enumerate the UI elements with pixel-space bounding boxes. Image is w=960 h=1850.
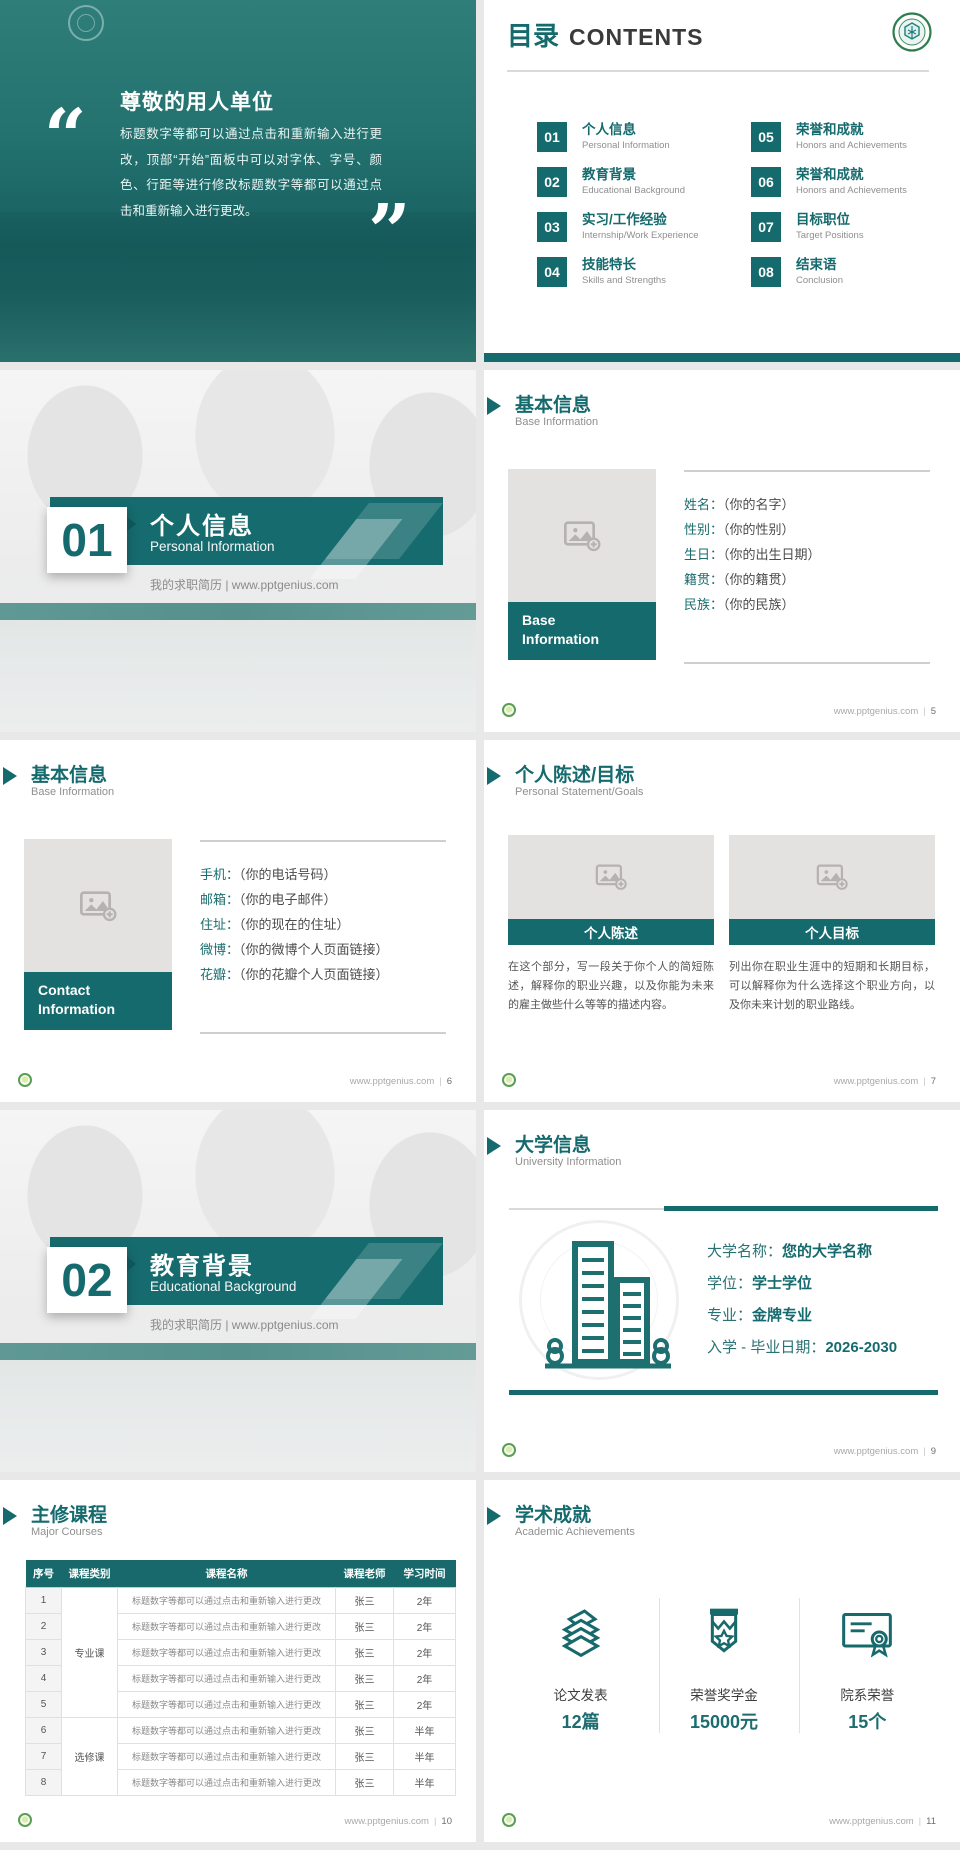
field-row: 籍贯：（你的籍贯）: [684, 567, 936, 592]
slide-title-cn: 个人陈述/目标: [515, 760, 634, 787]
medal-icon: [696, 1598, 752, 1660]
slide-base-info[interactable]: 基本信息 Base Information Base Information 姓…: [484, 370, 960, 732]
toc-title-en: CONTENTS: [569, 24, 704, 51]
cell-course-name: 标题数字等都可以通过点击和重新输入进行更改: [118, 1691, 336, 1717]
image-add-icon: [562, 516, 602, 556]
toc-item-number: 04: [537, 257, 567, 287]
title-divider: [507, 70, 929, 72]
footer-site: www.pptgenius.com: [829, 1816, 913, 1827]
field-row: 邮箱：（你的电子邮件）: [200, 887, 452, 912]
cell-duration: 半年: [394, 1717, 456, 1743]
divider: [684, 470, 930, 472]
title-pointer-icon: [487, 397, 501, 415]
detail-value: 您的大学名称: [782, 1243, 872, 1260]
photo-caption-badge: Base Information: [508, 602, 656, 660]
cell-duration: 半年: [394, 1769, 456, 1795]
field-label: 籍贯：: [684, 572, 723, 587]
toc-item-number: 03: [537, 212, 567, 242]
detail-label: 入学 - 毕业日期：: [707, 1339, 825, 1356]
cell-teacher: 张三: [336, 1639, 394, 1665]
field-value: （你的籍贯）: [723, 572, 795, 587]
image-add-icon: [594, 860, 628, 894]
page-number: 9: [931, 1446, 936, 1457]
field-value: （你的性别）: [723, 522, 795, 537]
papers-icon: [553, 1598, 609, 1660]
photo-placeholder[interactable]: [24, 839, 172, 972]
cell-duration: 2年: [394, 1613, 456, 1639]
cell-no: 7: [26, 1743, 62, 1769]
slide-toc[interactable]: 目录 CONTENTS 01 个人信息 Personal Information: [484, 0, 960, 362]
toc-item-subtitle: Target Positions: [796, 230, 864, 241]
cell-course-name: 标题数字等都可以通过点击和重新输入进行更改: [118, 1743, 336, 1769]
number-arrow-icon: [127, 517, 136, 531]
photo-lower-area: [0, 1360, 476, 1472]
pptgenius-logo: [502, 1443, 516, 1457]
toc-item-number: 06: [751, 167, 781, 197]
toc-item-05[interactable]: 05 荣誉和成就 Honors and Achievements: [751, 122, 960, 167]
slide-title-en: Personal Statement/Goals: [515, 786, 643, 798]
field-value: （你的花瓣个人页面链接）: [239, 967, 389, 982]
table-header-row: 序号 课程类别 课程名称 课程老师 学习时间: [26, 1560, 456, 1587]
toc-item-06[interactable]: 06 荣誉和成就 Honors and Achievements: [751, 167, 960, 212]
table-row: 6 选修课 标题数字等都可以通过点击和重新输入进行更改 张三 半年: [26, 1717, 456, 1743]
pptgenius-logo: [502, 703, 516, 717]
title-pointer-icon: [3, 1507, 17, 1525]
card-bottom-teal-line: [509, 1390, 938, 1395]
footer-separator: |: [919, 1816, 921, 1827]
toc-item-number: 08: [751, 257, 781, 287]
field-label: 姓名：: [684, 497, 723, 512]
toc-item-08[interactable]: 08 结束语 Conclusion: [751, 257, 960, 302]
goal-text: 列出你在职业生涯中的短期和长期目标，可以解释你为什么选择这个职业方向，以及你未来…: [729, 958, 935, 1015]
field-label: 民族：: [684, 597, 723, 612]
toc-item-subtitle: Honors and Achievements: [796, 140, 907, 151]
divider: [684, 662, 930, 664]
slide-major-courses[interactable]: 主修课程 Major Courses 序号 课程类别 课程名称 课程老师 学习时…: [0, 1480, 476, 1842]
card-top-gray-line: [509, 1208, 664, 1210]
stat-divider: [659, 1598, 660, 1733]
open-quote-icon: “: [44, 100, 87, 174]
field-label: 花瓣：: [200, 967, 239, 982]
toc-item-04[interactable]: 04 技能特长 Skills and Strengths: [537, 257, 751, 302]
field-row: 微博：（你的微博个人页面链接）: [200, 937, 452, 962]
page-number: 5: [931, 706, 936, 717]
footer-separator: |: [923, 1446, 925, 1457]
toc-title: 目录 CONTENTS: [507, 16, 704, 53]
toc-item-subtitle: Internship/Work Experience: [582, 230, 699, 241]
university-logo-watermark-icon: [68, 5, 104, 41]
section-title-en: Educational Background: [150, 1279, 296, 1294]
footer-site: www.pptgenius.com: [834, 1076, 918, 1087]
divider: [200, 1032, 446, 1034]
page-number: 10: [441, 1816, 452, 1827]
slide-section-01[interactable]: 个人信息 Personal Information 01 我的求职简历 | ww…: [0, 370, 476, 732]
toc-title-cn: 目录: [507, 16, 559, 53]
field-value: （你的微博个人页面链接）: [239, 942, 389, 957]
page-number: 7: [931, 1076, 936, 1087]
title-pointer-icon: [3, 767, 17, 785]
university-card: 大学名称：您的大学名称 学位：学士学位 专业：金牌专业 入学 - 毕业日期：20…: [509, 1208, 938, 1395]
stat-papers: 论文发表 12篇: [509, 1598, 652, 1734]
info-fields: 手机：（你的电话号码） 邮箱：（你的电子邮件） 住址：（你的现在的住址） 微博：…: [200, 862, 452, 987]
field-label: 手机：: [200, 867, 239, 882]
pptgenius-logo: [502, 1813, 516, 1827]
achievement-stats: 论文发表 12篇 荣誉奖学金 15000元: [509, 1598, 939, 1734]
photo-caption-badge: Contact Information: [24, 972, 172, 1030]
detail-value: 学士学位: [752, 1275, 812, 1292]
detail-label: 专业：: [707, 1307, 752, 1324]
toc-item-title: 个人信息: [582, 122, 670, 138]
certificate-icon: [838, 1598, 896, 1660]
footer-site: www.pptgenius.com: [344, 1816, 428, 1827]
toc-item-subtitle: Educational Background: [582, 185, 685, 196]
title-pointer-icon: [487, 1137, 501, 1155]
stat-value: 15000元: [690, 1708, 758, 1734]
col-header: 学习时间: [394, 1560, 456, 1587]
field-row: 民族：（你的民族）: [684, 592, 936, 617]
university-details: 大学名称：您的大学名称 学位：学士学位 专业：金牌专业 入学 - 毕业日期：20…: [707, 1236, 897, 1364]
university-row: 专业：金牌专业: [707, 1300, 897, 1332]
toc-item-title: 技能特长: [582, 257, 666, 273]
field-label: 微博：: [200, 942, 239, 957]
cell-teacher: 张三: [336, 1743, 394, 1769]
toc-item-subtitle: Skills and Strengths: [582, 275, 666, 286]
close-quote-icon: ”: [368, 195, 411, 269]
lake-photo-strip: [0, 1343, 476, 1360]
stat-scholarship: 荣誉奖学金 15000元: [652, 1598, 795, 1734]
university-seal-icon: [892, 12, 932, 52]
cell-teacher: 张三: [336, 1587, 394, 1613]
field-row: 姓名：（你的名字）: [684, 492, 936, 517]
slide-title-en: Base Information: [515, 416, 598, 428]
section-title-en: Personal Information: [150, 539, 275, 554]
detail-value: 金牌专业: [752, 1307, 812, 1324]
field-row: 性别：（你的性别）: [684, 517, 936, 542]
field-row: 花瓣：（你的花瓣个人页面链接）: [200, 962, 452, 987]
university-buildings-icon: [527, 1230, 687, 1387]
badge-line1: Base: [522, 611, 646, 630]
photo-placeholder[interactable]: [508, 835, 714, 919]
toc-item-title: 实习/工作经验: [582, 212, 699, 228]
slide-title-cn: 基本信息: [31, 760, 107, 787]
slide-footer: www.pptgenius.com|11: [829, 1816, 936, 1827]
toc-item-number: 05: [751, 122, 781, 152]
bottom-accent-bar: [484, 353, 960, 362]
field-value: （你的电子邮件）: [239, 892, 337, 907]
toc-item-title: 目标职位: [796, 212, 864, 228]
slide-title-cn: 主修课程: [31, 1500, 107, 1527]
stat-label: 院系荣誉: [840, 1684, 894, 1704]
detail-label: 学位：: [707, 1275, 752, 1292]
cell-no: 2: [26, 1613, 62, 1639]
field-label: 邮箱：: [200, 892, 239, 907]
cell-course-name: 标题数字等都可以通过点击和重新输入进行更改: [118, 1587, 336, 1613]
university-row: 大学名称：您的大学名称: [707, 1236, 897, 1268]
slide-footer: www.pptgenius.com|6: [350, 1076, 452, 1087]
cell-no: 1: [26, 1587, 62, 1613]
toc-column-right: 05 荣誉和成就 Honors and Achievements 06 荣誉和成…: [751, 122, 960, 302]
section-title-cn: 个人信息: [150, 506, 254, 541]
slide-statement-goals[interactable]: 个人陈述/目标 Personal Statement/Goals 个人陈述 个人…: [484, 740, 960, 1102]
slide-title-en: University Information: [515, 1156, 621, 1168]
slide-footer: www.pptgenius.com|5: [834, 706, 936, 717]
cell-course-name: 标题数字等都可以通过点击和重新输入进行更改: [118, 1613, 336, 1639]
toc-item-subtitle: Honors and Achievements: [796, 185, 907, 196]
toc-item-subtitle: Personal Information: [582, 140, 670, 151]
toc-item-number: 01: [537, 122, 567, 152]
section-title-cn: 教育背景: [150, 1246, 254, 1281]
lake-photo-strip: [0, 603, 476, 620]
image-add-icon: [815, 860, 849, 894]
image-add-icon: [78, 886, 118, 926]
field-value: （你的电话号码）: [239, 867, 337, 882]
col-header: 课程类别: [62, 1560, 118, 1587]
divider: [200, 840, 446, 842]
toc-item-02[interactable]: 02 教育背景 Educational Background: [537, 167, 751, 212]
slide-university-info[interactable]: 大学信息 University Information: [484, 1110, 960, 1472]
cell-duration: 2年: [394, 1587, 456, 1613]
field-row: 住址：（你的现在的住址）: [200, 912, 452, 937]
field-value: （你的现在的住址）: [239, 917, 350, 932]
slide-title-en: Base Information: [31, 786, 114, 798]
cell-no: 5: [26, 1691, 62, 1717]
toc-item-title: 教育背景: [582, 167, 685, 183]
badge-line2: Information: [522, 630, 646, 649]
slide-title-cn: 学术成就: [515, 1500, 591, 1527]
slide-title-en: Academic Achievements: [515, 1526, 635, 1538]
cell-no: 4: [26, 1665, 62, 1691]
section-number: 02: [47, 1247, 127, 1313]
stat-value: 15个: [848, 1708, 886, 1734]
cell-no: 8: [26, 1769, 62, 1795]
col-header: 课程老师: [336, 1560, 394, 1587]
cell-course-name: 标题数字等都可以通过点击和重新输入进行更改: [118, 1717, 336, 1743]
university-row: 学位：学士学位: [707, 1268, 897, 1300]
statement-text: 在这个部分，写一段关于你个人的简短陈述，解释你的职业兴趣，以及你能为未来的雇主做…: [508, 958, 714, 1015]
cell-duration: 2年: [394, 1665, 456, 1691]
cell-teacher: 张三: [336, 1691, 394, 1717]
cell-teacher: 张三: [336, 1665, 394, 1691]
badge-line2: Information: [38, 1000, 162, 1019]
card-top-teal-line: [664, 1206, 938, 1211]
toc-item-subtitle: Conclusion: [796, 275, 843, 286]
cell-teacher: 张三: [336, 1769, 394, 1795]
cell-duration: 2年: [394, 1691, 456, 1717]
stat-value: 12篇: [562, 1708, 600, 1734]
table-row: 1 专业课 标题数字等都可以通过点击和重新输入进行更改 张三 2年: [26, 1587, 456, 1613]
col-header: 序号: [26, 1560, 62, 1587]
toc-item-title: 荣誉和成就: [796, 122, 907, 138]
slide-footer: www.pptgenius.com|7: [834, 1076, 936, 1087]
footer-separator: |: [434, 1816, 436, 1827]
pptgenius-logo: [502, 1073, 516, 1087]
slide-contact-info[interactable]: 基本信息 Base Information Contact Informatio…: [0, 740, 476, 1102]
stat-honors: 院系荣誉 15个: [796, 1598, 939, 1734]
cell-duration: 半年: [394, 1743, 456, 1769]
info-fields: 姓名：（你的名字） 性别：（你的性别） 生日：（你的出生日期） 籍贯：（你的籍贯…: [684, 492, 936, 617]
detail-value: 2026-2030: [825, 1339, 897, 1356]
slide-section-02[interactable]: 教育背景 Educational Background 02 我的求职简历 | …: [0, 1110, 476, 1472]
slide-preview-grid: “ 尊敬的用人单位 标题数字等都可以通过点击和重新输入进行更改，顶部“开始”面板…: [0, 0, 960, 1850]
field-row: 手机：（你的电话号码）: [200, 862, 452, 887]
toc-column-left: 01 个人信息 Personal Information 02 教育背景 Edu…: [537, 122, 751, 302]
field-label: 生日：: [684, 547, 723, 562]
cell-no: 3: [26, 1639, 62, 1665]
cell-course-name: 标题数字等都可以通过点击和重新输入进行更改: [118, 1639, 336, 1665]
detail-label: 大学名称：: [707, 1243, 782, 1260]
slide-academic-achievements[interactable]: 学术成就 Academic Achievements 论文发表 12篇: [484, 1480, 960, 1842]
courses-table: 序号 课程类别 课程名称 课程老师 学习时间 1 专业课 标题数字等都可以通过点…: [25, 1560, 456, 1796]
pptgenius-logo: [18, 1813, 32, 1827]
photo-placeholder[interactable]: [508, 469, 656, 602]
footer-site: www.pptgenius.com: [350, 1076, 434, 1087]
pptgenius-logo: [18, 1073, 32, 1087]
goal-caption: 个人目标: [729, 919, 935, 945]
field-row: 生日：（你的出生日期）: [684, 542, 936, 567]
statement-caption: 个人陈述: [508, 919, 714, 945]
slide-cover-quote[interactable]: “ 尊敬的用人单位 标题数字等都可以通过点击和重新输入进行更改，顶部“开始”面板…: [0, 0, 476, 362]
footer-site: www.pptgenius.com: [834, 706, 918, 717]
photo-placeholder[interactable]: [729, 835, 935, 919]
footer-separator: |: [923, 1076, 925, 1087]
toc-item-title: 荣誉和成就: [796, 167, 907, 183]
cell-course-name: 标题数字等都可以通过点击和重新输入进行更改: [118, 1665, 336, 1691]
number-arrow-icon: [127, 1257, 136, 1271]
field-label: 住址：: [200, 917, 239, 932]
page-number: 11: [926, 1816, 936, 1827]
cell-teacher: 张三: [336, 1717, 394, 1743]
section-tagline: 我的求职简历 | www.pptgenius.com: [150, 576, 339, 593]
badge-line1: Contact: [38, 981, 162, 1000]
title-pointer-icon: [487, 1507, 501, 1525]
toc-item-07[interactable]: 07 目标职位 Target Positions: [751, 212, 960, 257]
cell-no: 6: [26, 1717, 62, 1743]
field-value: （你的出生日期）: [723, 547, 821, 562]
slide-title-en: Major Courses: [31, 1526, 103, 1538]
toc-item-number: 07: [751, 212, 781, 242]
cover-body-text: 标题数字等都可以通过点击和重新输入进行更改，顶部“开始”面板中可以对字体、字号、…: [120, 122, 382, 225]
col-header: 课程名称: [118, 1560, 336, 1587]
stat-label: 荣誉奖学金: [690, 1684, 758, 1704]
photo-lower-area: [0, 620, 476, 732]
cell-course-name: 标题数字等都可以通过点击和重新输入进行更改: [118, 1769, 336, 1795]
slide-title-cn: 大学信息: [515, 1130, 591, 1157]
toc-item-01[interactable]: 01 个人信息 Personal Information: [537, 122, 751, 167]
cover-heading: 尊敬的用人单位: [120, 86, 274, 116]
title-pointer-icon: [487, 767, 501, 785]
toc-list: 01 个人信息 Personal Information 02 教育背景 Edu…: [537, 122, 960, 302]
stat-label: 论文发表: [554, 1684, 608, 1704]
slide-title-cn: 基本信息: [515, 390, 591, 417]
toc-item-03[interactable]: 03 实习/工作经验 Internship/Work Experience: [537, 212, 751, 257]
cell-duration: 2年: [394, 1639, 456, 1665]
university-row: 入学 - 毕业日期：2026-2030: [707, 1332, 897, 1364]
cell-teacher: 张三: [336, 1613, 394, 1639]
cell-category: 专业课: [62, 1587, 118, 1717]
footer-separator: |: [923, 706, 925, 717]
field-value: （你的名字）: [723, 497, 795, 512]
toc-item-title: 结束语: [796, 257, 843, 273]
page-number: 6: [447, 1076, 452, 1087]
section-tagline: 我的求职简历 | www.pptgenius.com: [150, 1316, 339, 1333]
section-number: 01: [47, 507, 127, 573]
toc-item-number: 02: [537, 167, 567, 197]
field-label: 性别：: [684, 522, 723, 537]
stat-divider: [799, 1598, 800, 1733]
field-value: （你的民族）: [723, 597, 795, 612]
slide-footer: www.pptgenius.com|9: [834, 1446, 936, 1457]
cell-category: 选修课: [62, 1717, 118, 1795]
footer-site: www.pptgenius.com: [834, 1446, 918, 1457]
slide-footer: www.pptgenius.com|10: [344, 1816, 452, 1827]
footer-separator: |: [439, 1076, 441, 1087]
